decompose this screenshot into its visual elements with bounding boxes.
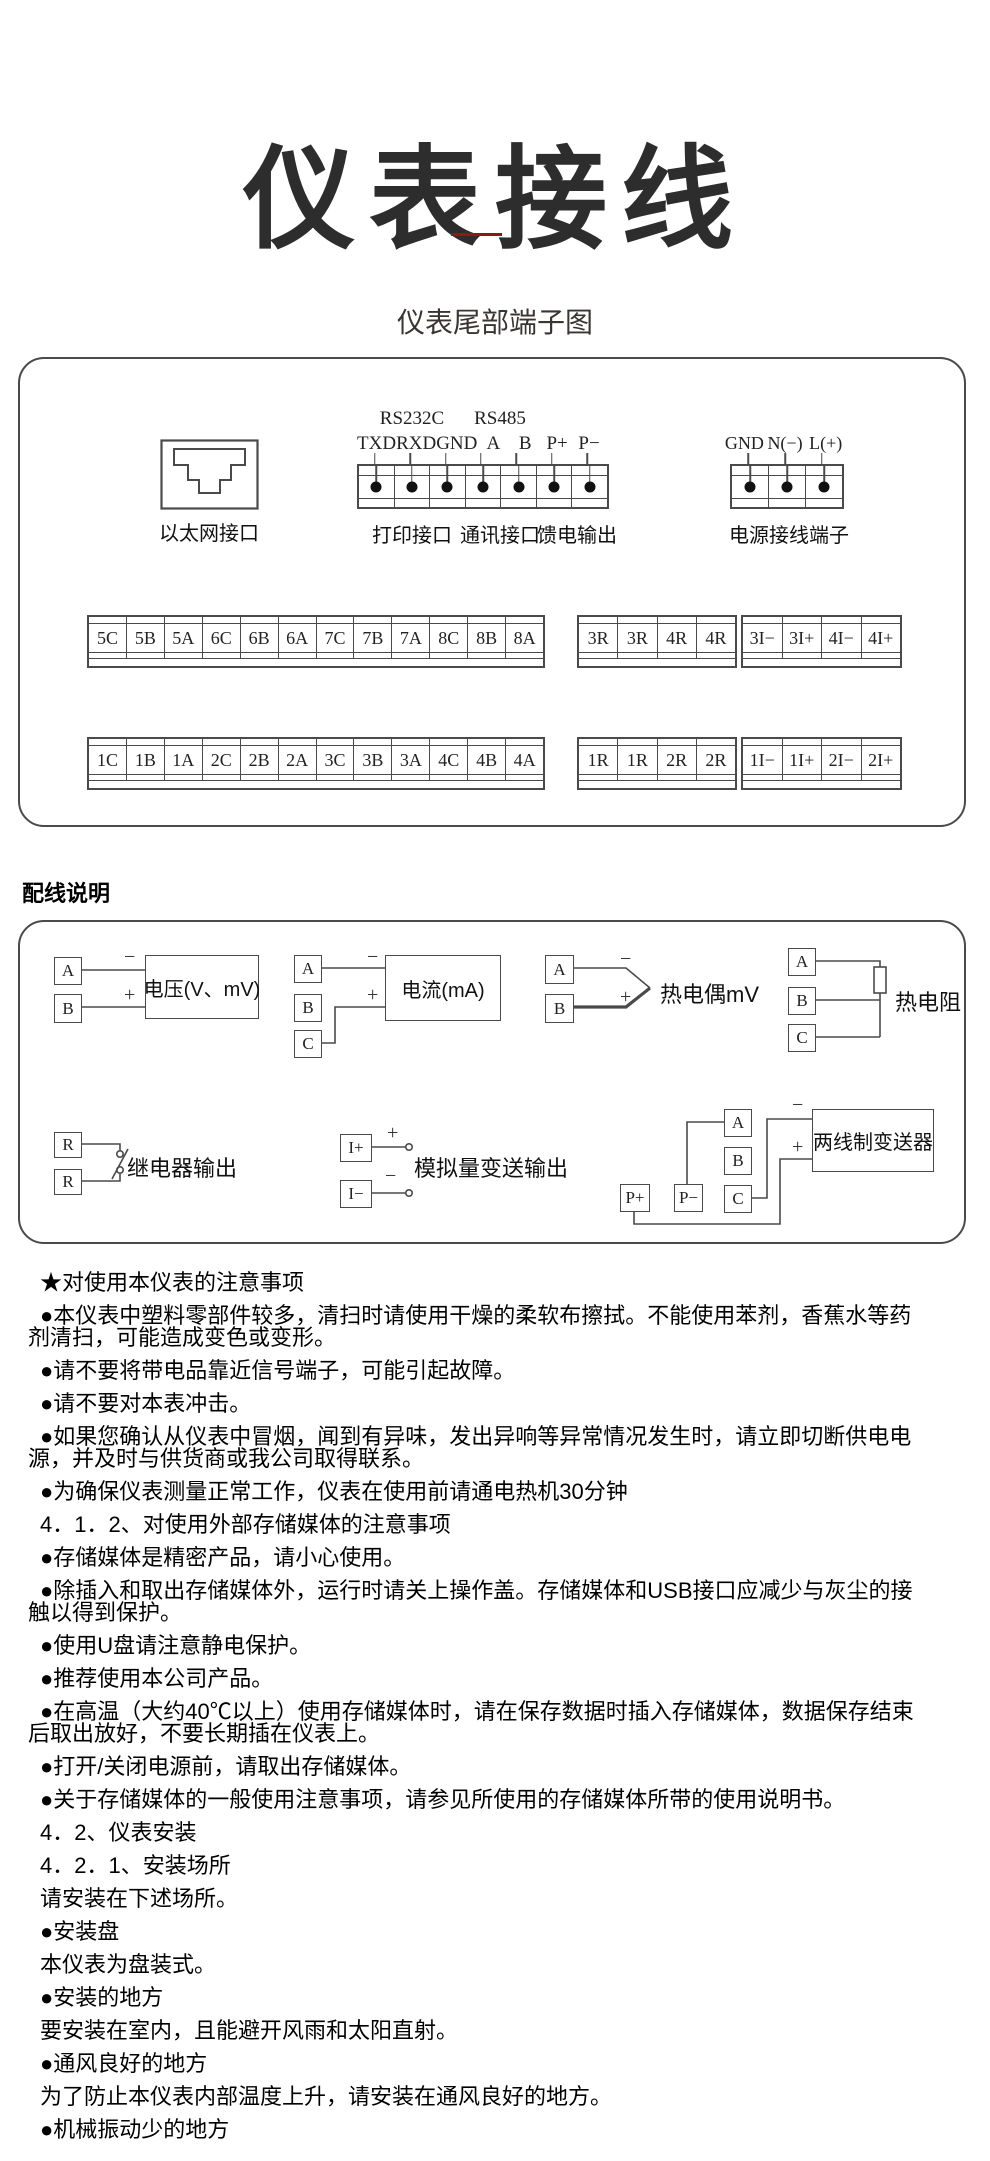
pin-label: RXD — [396, 433, 436, 455]
note-paragraph: 本仪表为盘装式。 — [28, 1954, 920, 1976]
terminal-cell: 5A — [165, 624, 203, 652]
note-paragraph: ●机械振动少的地方 — [28, 2119, 920, 2141]
terminal-square: R — [54, 1169, 82, 1195]
terminal-strip: 1C1B1A2C2B2A3C3B3A4C4B4A — [87, 737, 545, 790]
terminal-strip-band — [354, 653, 392, 658]
terminal-square: P+ — [620, 1184, 650, 1212]
serial-pin-stems — [357, 453, 605, 464]
terminal-strip-band — [862, 775, 901, 780]
terminal-cell: 7C — [317, 624, 355, 652]
instrument-wiring-document: 仪表接线 仪表尾部端子图 以太网接口 RS232C RS485 TXD RXD … — [0, 0, 990, 2161]
terminal-strip-band — [506, 617, 543, 623]
terminal-cell: 4I+ — [862, 624, 901, 652]
terminal-cell: 2B — [241, 746, 279, 774]
terminal-strip-band — [743, 653, 783, 658]
output-contact — [406, 1144, 412, 1150]
polarity-plus: + — [387, 1122, 398, 1145]
note-paragraph: ●通风良好的地方 — [28, 2053, 920, 2075]
terminal-cell: 1I− — [743, 746, 783, 774]
terminal-strip-band — [579, 775, 618, 780]
connector-band — [359, 466, 607, 476]
terminal-strip-band — [658, 617, 697, 623]
note-paragraph: 要安装在室内，且能避开风雨和太阳直射。 — [28, 2020, 920, 2042]
terminal-strip-band — [317, 653, 355, 658]
terminal-strip-band — [618, 739, 657, 745]
terminal-strip-base — [89, 659, 543, 666]
terminal-square: B — [788, 987, 816, 1015]
switch-contact — [117, 1151, 123, 1157]
terminal-strip-row: 1I−1I+2I−2I+ — [743, 746, 900, 775]
note-paragraph: ●存储媒体是精密产品，请小心使用。 — [28, 1547, 920, 1569]
terminal-strip: 1I−1I+2I−2I+ — [741, 737, 902, 790]
terminal-cell: 7B — [354, 624, 392, 652]
connector-band — [732, 499, 842, 507]
terminal-strip-band — [89, 617, 127, 623]
terminal-dot — [549, 482, 560, 493]
terminal-strip-band — [354, 739, 392, 745]
connector-band — [359, 499, 607, 507]
terminal-strip-band — [618, 617, 657, 623]
output-contact — [406, 1190, 412, 1196]
serial-connector-strip — [357, 464, 609, 509]
terminal-cell: 1B — [127, 746, 165, 774]
thermocouple-label: 热电偶mV — [660, 977, 759, 1009]
terminal-strip-band — [203, 653, 241, 658]
terminal-strip-band — [506, 775, 543, 780]
terminal-strip-base — [743, 781, 900, 788]
terminal-strip-band — [241, 617, 279, 623]
note-paragraph: ●为确保仪表测量正常工作，仪表在使用前请通电热机30分钟 — [28, 1481, 920, 1503]
relay-output-label: 继电器输出 — [127, 1151, 237, 1183]
terminal-dot — [745, 482, 756, 493]
terminal-diagram-title: 仪表尾部端子图 — [0, 301, 990, 341]
note-paragraph: 4．2．1、安装场所 — [28, 1855, 920, 1877]
terminal-strip-row — [89, 739, 543, 746]
terminal-strip-band — [392, 617, 430, 623]
polarity-plus: + — [620, 986, 631, 1009]
note-paragraph: ●如果您确认从仪表中冒烟，闻到有异味，发出异响等异常情况发生时，请立即切断供电电… — [28, 1426, 920, 1470]
terminal-strip-band — [165, 739, 203, 745]
terminal-dot — [513, 482, 524, 493]
terminal-strip-band — [430, 617, 468, 623]
pin-stem — [392, 453, 427, 464]
terminal-square: C — [788, 1024, 816, 1052]
terminal-strip-band — [822, 617, 862, 623]
terminal-cell: 2I+ — [862, 746, 901, 774]
terminal-strip-band — [618, 775, 657, 780]
rs485-label: RS485 — [462, 408, 538, 430]
terminal-cell: 6B — [241, 624, 279, 652]
power-pin-stems — [730, 453, 840, 464]
comm-port-caption: 通讯接口 — [460, 519, 540, 548]
terminal-strip-base — [579, 781, 735, 788]
pin-stem — [570, 453, 605, 464]
terminal-strip-band — [822, 653, 862, 658]
terminal-strip-band — [317, 739, 355, 745]
pin-label: A — [477, 433, 509, 455]
terminal-cell: 4R — [697, 624, 735, 652]
terminal-strip-band — [203, 617, 241, 623]
terminal-square: B — [545, 994, 574, 1023]
rtd-label: 热电阻 — [895, 985, 961, 1017]
note-paragraph: ●除插入和取出存储媒体外，运行时请关上操作盖。存储媒体和USB接口应减少与灰尘的… — [28, 1580, 920, 1624]
note-paragraph: ●安装盘 — [28, 1921, 920, 1943]
terminal-strip-band — [165, 617, 203, 623]
note-paragraph: 请安装在下述场所。 — [28, 1888, 920, 1910]
terminal-strip-band — [468, 775, 506, 780]
terminal-strip-band — [430, 653, 468, 658]
connector-band — [732, 466, 842, 476]
pin-label: TXD — [357, 433, 396, 455]
terminal-strip-band — [392, 739, 430, 745]
pin-label: P− — [573, 433, 605, 455]
terminal-strip-band — [392, 653, 430, 658]
power-connector-strip — [730, 464, 844, 509]
terminal-strip-band — [127, 653, 165, 658]
terminal-cell: 3A — [392, 746, 430, 774]
terminal-strip-band — [579, 617, 618, 623]
terminal-cell: 4C — [430, 746, 468, 774]
terminal-strip-band — [822, 775, 862, 780]
note-paragraph: ●推荐使用本公司产品。 — [28, 1668, 920, 1690]
pin-stem — [357, 453, 392, 464]
terminal-strip-band — [317, 617, 355, 623]
terminal-strip-row — [743, 617, 900, 624]
terminal-strip-row: 5C5B5A6C6B6A7C7B7A8C8B8A — [89, 624, 543, 653]
note-paragraph: ●请不要对本表冲击。 — [28, 1393, 920, 1415]
terminal-strip-row: 1R1R2R2R — [579, 746, 735, 775]
terminal-square: P− — [674, 1184, 703, 1212]
terminal-square: C — [724, 1185, 752, 1213]
terminal-cell: 4R — [658, 624, 697, 652]
terminal-strip-band — [579, 739, 618, 745]
terminal-strip-band — [658, 739, 697, 745]
ethernet-port-icon — [160, 439, 259, 510]
terminal-square: B — [724, 1147, 752, 1175]
terminal-strip-band — [89, 775, 127, 780]
pin-label: L(+) — [805, 433, 846, 454]
terminal-strip-band — [430, 775, 468, 780]
ethernet-caption: 以太网接口 — [159, 517, 259, 546]
note-paragraph: ●关于存储媒体的一般使用注意事项，请参见所使用的存储媒体所带的使用说明书。 — [28, 1789, 920, 1811]
pin-label: GND — [436, 433, 477, 455]
terminal-dot — [819, 482, 830, 493]
terminal-strip-row — [579, 739, 735, 746]
terminal-strip-band — [127, 739, 165, 745]
terminal-diagram-panel: 以太网接口 RS232C RS485 TXD RXD GND A B P+ P− — [18, 357, 966, 827]
terminal-cell: 5B — [127, 624, 165, 652]
pin-stem — [463, 453, 498, 464]
terminal-strip-band — [743, 775, 783, 780]
terminal-strip-row — [579, 617, 735, 624]
terminal-strip-base — [89, 781, 543, 788]
terminal-strip-band — [279, 617, 317, 623]
terminal-cell: 3R — [579, 624, 618, 652]
terminal-strip-band — [618, 653, 657, 658]
pin-stem — [803, 453, 840, 464]
terminal-cell: 7A — [392, 624, 430, 652]
terminal-square: C — [294, 1030, 322, 1058]
terminal-strip-band — [203, 775, 241, 780]
polarity-minus: − — [124, 946, 135, 969]
terminal-strip-band — [658, 775, 697, 780]
terminal-strip-band — [506, 653, 543, 658]
polarity-plus: + — [792, 1136, 803, 1159]
terminal-strip-band — [241, 653, 279, 658]
resistor-symbol — [874, 967, 886, 993]
note-paragraph: 为了防止本仪表内部温度上升，请安装在通风良好的地方。 — [28, 2086, 920, 2108]
pin-label: P+ — [541, 433, 573, 455]
terminal-strip: 1R1R2R2R — [577, 737, 737, 790]
terminal-cell: 4I− — [822, 624, 862, 652]
terminal-cell: 4A — [506, 746, 543, 774]
terminal-strip-band — [783, 617, 823, 623]
terminal-strip-band — [658, 653, 697, 658]
terminal-cell: 2A — [279, 746, 317, 774]
terminal-cell: 3B — [354, 746, 392, 774]
terminal-dot — [442, 482, 453, 493]
terminal-strip-band — [783, 653, 823, 658]
analog-output-label: 模拟量变送输出 — [414, 1151, 568, 1183]
terminal-cell: 3I− — [743, 624, 783, 652]
terminal-strip-band — [862, 617, 901, 623]
terminal-strip-band — [697, 739, 735, 745]
terminal-strip-band — [697, 653, 735, 658]
terminal-cell: 2C — [203, 746, 241, 774]
terminal-square: R — [54, 1132, 82, 1158]
terminal-strip-band — [506, 739, 543, 745]
terminal-cell: 3R — [618, 624, 657, 652]
terminal-strip-row: 3R3R4R4R — [579, 624, 735, 653]
terminal-strip-band — [354, 775, 392, 780]
terminal-strip-band — [89, 653, 127, 658]
current-input-box: 电流(mA) — [385, 955, 501, 1021]
terminal-strip-band — [241, 739, 279, 745]
terminal-strip-band — [862, 739, 901, 745]
terminal-strip-row: 1C1B1A2C2B2A3C3B3A4C4B4A — [89, 746, 543, 775]
pin-stem — [534, 453, 569, 464]
pin-label: GND — [724, 433, 765, 454]
print-port-caption: 打印接口 — [372, 519, 452, 548]
note-paragraph: ●请不要将带电品靠近信号端子，可能引起故障。 — [28, 1360, 920, 1382]
terminal-strip-band — [392, 775, 430, 780]
terminal-cell: 1R — [579, 746, 618, 774]
rs232c-label: RS232C — [372, 408, 452, 430]
terminal-strip-band — [354, 617, 392, 623]
terminal-dot — [782, 482, 793, 493]
note-paragraph: ●本仪表中塑料零部件较多，清扫时请使用干燥的柔软布擦拭。不能使用苯剂，香蕉水等药… — [28, 1305, 920, 1349]
title-divider — [451, 233, 502, 236]
terminal-cell: 3C — [317, 746, 355, 774]
pin-stem — [499, 453, 534, 464]
transmitter-box: 两线制变送器 — [812, 1109, 934, 1172]
terminal-strip-band — [468, 617, 506, 623]
page-title: 仪表接线 — [0, 133, 990, 267]
terminal-strip-band — [430, 739, 468, 745]
note-paragraph: ●打开/关闭电源前，请取出存储媒体。 — [28, 1756, 920, 1778]
terminal-cell: 6A — [279, 624, 317, 652]
terminal-square: B — [294, 994, 322, 1022]
polarity-minus: − — [385, 1165, 396, 1188]
terminal-strip-band — [127, 775, 165, 780]
terminal-square: I− — [340, 1180, 372, 1208]
connector-dot-row — [732, 476, 842, 499]
terminal-strip-band — [783, 739, 823, 745]
terminal-cell: 4B — [468, 746, 506, 774]
terminal-strip-row — [89, 617, 543, 624]
pin-label: N(−) — [765, 433, 806, 454]
terminal-strip-band — [279, 653, 317, 658]
polarity-minus: − — [792, 1094, 803, 1117]
terminal-strip-base — [743, 659, 900, 666]
terminal-strip-base — [579, 659, 735, 666]
terminal-strip-band — [165, 775, 203, 780]
terminal-strip-band — [241, 775, 279, 780]
terminal-square: I+ — [340, 1134, 372, 1162]
terminal-strip: 3R3R4R4R — [577, 615, 737, 668]
terminal-square: B — [54, 994, 82, 1023]
terminal-square: A — [788, 948, 816, 976]
note-paragraph: ●安装的地方 — [28, 1987, 920, 2009]
feed-output-caption: 馈电输出 — [537, 519, 617, 548]
terminal-dot — [478, 482, 489, 493]
note-paragraph: 4．1．2、对使用外部存储媒体的注意事项 — [28, 1514, 920, 1536]
wiring-notes-title: 配线说明 — [22, 876, 110, 908]
terminal-strip-band — [468, 739, 506, 745]
terminal-cell: 2R — [658, 746, 697, 774]
terminal-dot — [584, 482, 595, 493]
note-paragraph: ●在高温（大约40℃以上）使用存储媒体时，请在保存数据时插入存储媒体，数据保存结… — [28, 1701, 920, 1745]
power-terminal-caption: 电源接线端子 — [729, 519, 849, 548]
terminal-strip-band — [697, 775, 735, 780]
terminal-strip-band — [279, 739, 317, 745]
terminal-cell: 1I+ — [783, 746, 823, 774]
power-pin-labels: GND N(−) L(+) — [724, 433, 846, 454]
terminal-square: A — [724, 1109, 752, 1137]
serial-pin-labels: TXD RXD GND A B P+ P− — [357, 433, 605, 455]
polarity-minus: − — [367, 946, 378, 969]
terminal-cell: 5C — [89, 624, 127, 652]
terminal-cell: 3I+ — [783, 624, 823, 652]
terminal-cell: 2R — [697, 746, 735, 774]
terminal-strip: 3I−3I+4I−4I+ — [741, 615, 902, 668]
terminal-strip-band — [127, 617, 165, 623]
terminal-strip-band — [279, 775, 317, 780]
terminal-strip-band — [697, 617, 735, 623]
terminal-dot — [371, 482, 382, 493]
terminal-strip-band — [317, 775, 355, 780]
pin-label: B — [509, 433, 541, 455]
voltage-input-box: 电压(V、mV) — [145, 955, 259, 1019]
terminal-cell: 2I− — [822, 746, 862, 774]
note-paragraph: ★对使用本仪表的注意事项 — [28, 1272, 920, 1294]
terminal-strip-band — [468, 653, 506, 658]
note-paragraph: 4．2、仪表安装 — [28, 1822, 920, 1844]
terminal-dot — [406, 482, 417, 493]
terminal-strip-row — [743, 739, 900, 746]
note-paragraph: ●使用U盘请注意静电保护。 — [28, 1635, 920, 1657]
terminal-strip-band — [743, 739, 783, 745]
connector-dot-row — [359, 476, 607, 499]
terminal-cell: 6C — [203, 624, 241, 652]
terminal-strip-band — [579, 653, 618, 658]
wiring-diagram-panel: A B − + 电压(V、mV) A B C − + 电流(mA) A B − … — [18, 920, 966, 1244]
terminal-strip-band — [89, 739, 127, 745]
pin-stem — [767, 453, 804, 464]
terminal-square: A — [54, 957, 82, 985]
terminal-cell: 1A — [165, 746, 203, 774]
terminal-cell: 8B — [468, 624, 506, 652]
terminal-square: A — [294, 955, 322, 983]
terminal-cell: 1R — [618, 746, 657, 774]
terminal-strip-band — [743, 617, 783, 623]
pin-stem — [428, 453, 463, 464]
terminal-square: A — [545, 955, 574, 984]
polarity-minus: − — [620, 948, 631, 971]
terminal-strip-band — [203, 739, 241, 745]
terminal-cell: 8A — [506, 624, 543, 652]
terminal-strip-row: 3I−3I+4I−4I+ — [743, 624, 900, 653]
terminal-cell: 1C — [89, 746, 127, 774]
pin-stem — [730, 453, 767, 464]
terminal-cell: 8C — [430, 624, 468, 652]
terminal-strip: 5C5B5A6C6B6A7C7B7A8C8B8A — [87, 615, 545, 668]
notes-text-block: ★对使用本仪表的注意事项●本仪表中塑料零部件较多，清扫时请使用干燥的柔软布擦拭。… — [28, 1272, 920, 2152]
polarity-plus: + — [367, 984, 378, 1007]
terminal-strip-band — [783, 775, 823, 780]
terminal-strip-band — [165, 653, 203, 658]
terminal-strip-band — [862, 653, 901, 658]
polarity-plus: + — [124, 984, 135, 1007]
terminal-strip-band — [822, 739, 862, 745]
